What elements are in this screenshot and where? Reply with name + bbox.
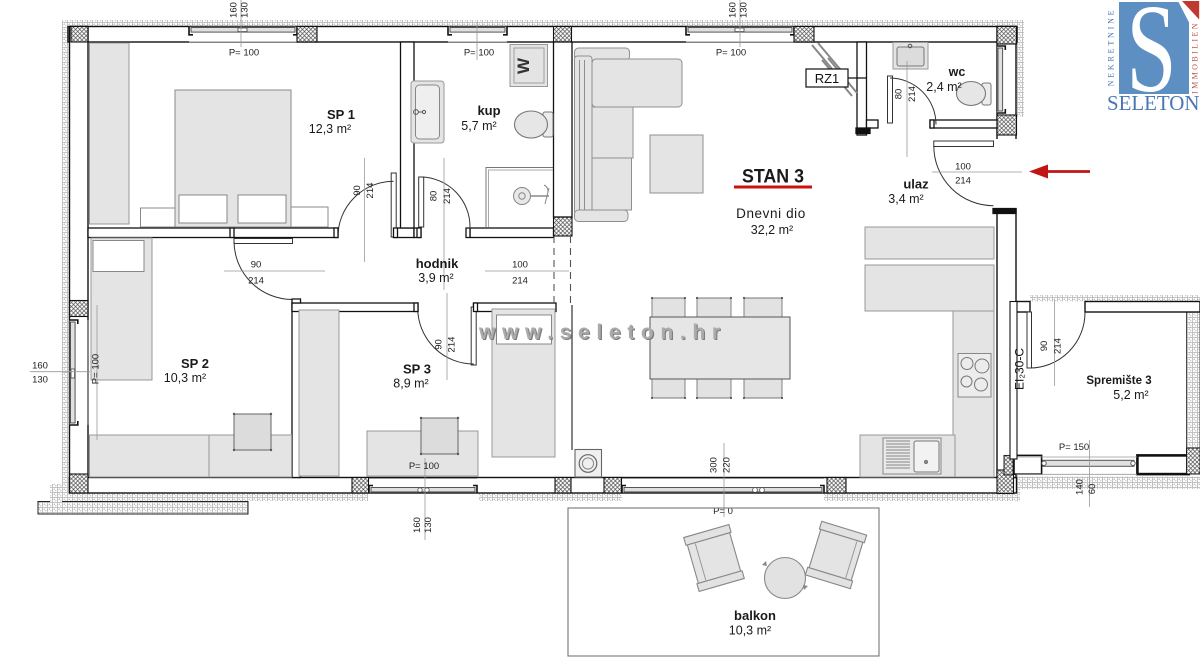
svg-text:STAN 3: STAN 3 xyxy=(742,166,804,188)
svg-text:100: 100 xyxy=(512,260,528,271)
svg-text:300: 300 xyxy=(709,457,720,473)
svg-text:www.seleton.hr: www.seleton.hr xyxy=(478,321,720,344)
svg-text:5,7 m²: 5,7 m² xyxy=(461,119,496,133)
svg-text:214: 214 xyxy=(907,86,918,102)
svg-text:3,4 m²: 3,4 m² xyxy=(888,192,923,206)
svg-text:2,4 m²: 2,4 m² xyxy=(926,80,961,94)
svg-text:Spremište 3: Spremište 3 xyxy=(1086,375,1151,387)
svg-text:balkon: balkon xyxy=(734,608,776,623)
svg-text:5,2 m²: 5,2 m² xyxy=(1113,388,1148,402)
svg-text:214: 214 xyxy=(1053,338,1064,354)
svg-text:90: 90 xyxy=(434,339,445,350)
svg-text:P= 100: P= 100 xyxy=(716,48,746,59)
svg-text:80: 80 xyxy=(429,191,440,202)
svg-text:214: 214 xyxy=(955,176,971,187)
svg-text:P= 100: P= 100 xyxy=(229,48,259,59)
svg-text:32,2 m²: 32,2 m² xyxy=(751,223,793,237)
svg-text:130: 130 xyxy=(240,2,251,18)
svg-text:EI₂30-C: EI₂30-C xyxy=(1013,348,1027,390)
svg-text:214: 214 xyxy=(365,183,376,199)
svg-text:Dnevni dio: Dnevni dio xyxy=(736,206,806,221)
svg-text:wc: wc xyxy=(948,65,966,79)
svg-text:214: 214 xyxy=(248,276,264,287)
svg-text:3,9 m²: 3,9 m² xyxy=(418,271,453,285)
svg-text:ulaz: ulaz xyxy=(903,177,929,192)
svg-text:SP 1: SP 1 xyxy=(327,107,355,122)
svg-text:80: 80 xyxy=(894,89,905,100)
svg-text:12,3 m²: 12,3 m² xyxy=(309,122,351,136)
svg-text:P= 150: P= 150 xyxy=(1059,442,1089,453)
svg-text:10,3 m²: 10,3 m² xyxy=(164,371,206,385)
svg-text:214: 214 xyxy=(442,188,453,204)
svg-text:SP 3: SP 3 xyxy=(403,362,431,377)
svg-text:90: 90 xyxy=(251,260,262,271)
svg-text:60: 60 xyxy=(1087,484,1098,495)
svg-text:IMMOBILIEN: IMMOBILIEN xyxy=(1191,21,1200,94)
svg-text:W: W xyxy=(514,57,533,74)
svg-text:90: 90 xyxy=(352,185,363,196)
svg-text:214: 214 xyxy=(512,276,528,287)
svg-text:P= 100: P= 100 xyxy=(409,461,439,472)
svg-text:160: 160 xyxy=(412,517,423,533)
svg-text:P= 100: P= 100 xyxy=(91,354,102,384)
svg-text:P= 100: P= 100 xyxy=(464,48,494,59)
svg-text:NEKRETNINE: NEKRETNINE xyxy=(1107,8,1116,87)
svg-text:140: 140 xyxy=(1075,479,1086,495)
svg-text:8,9 m²: 8,9 m² xyxy=(393,377,428,391)
svg-text:RZ1: RZ1 xyxy=(815,71,840,86)
svg-text:10,3 m²: 10,3 m² xyxy=(729,624,771,638)
svg-text:160: 160 xyxy=(32,361,48,372)
svg-text:SP 2: SP 2 xyxy=(181,356,209,371)
svg-text:130: 130 xyxy=(423,517,434,533)
svg-text:214: 214 xyxy=(447,337,458,353)
svg-text:kup: kup xyxy=(477,103,500,118)
svg-text:130: 130 xyxy=(32,375,48,386)
svg-text:220: 220 xyxy=(722,457,733,473)
svg-text:hodnik: hodnik xyxy=(416,256,459,271)
svg-text:130: 130 xyxy=(739,2,750,18)
svg-text:90: 90 xyxy=(1039,341,1050,352)
svg-text:160: 160 xyxy=(728,2,739,18)
svg-text:160: 160 xyxy=(229,2,240,18)
svg-text:100: 100 xyxy=(955,162,971,173)
svg-text:SELETON: SELETON xyxy=(1107,91,1200,115)
